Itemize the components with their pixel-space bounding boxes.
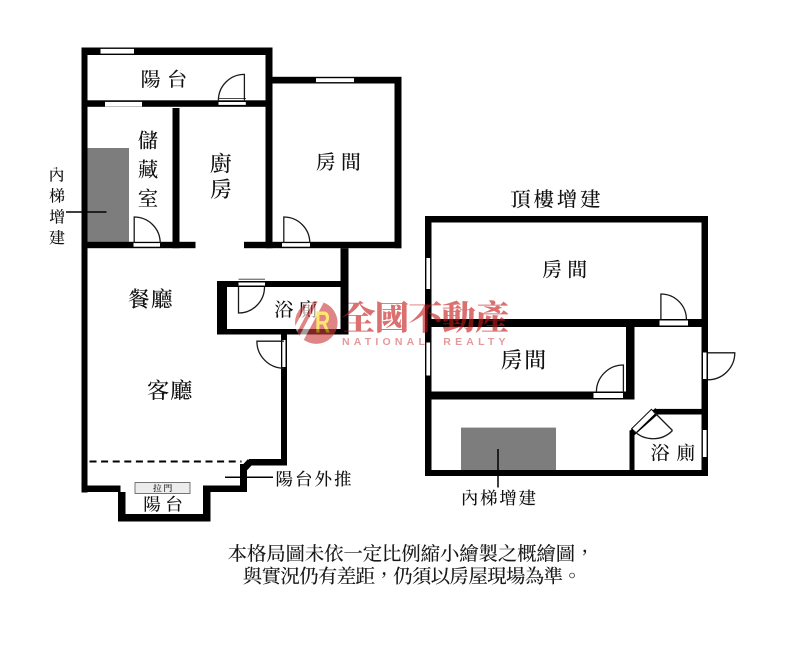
svg-text:NATIONAL REALTY: NATIONAL REALTY <box>342 336 510 348</box>
svg-text:R: R <box>315 305 330 340</box>
